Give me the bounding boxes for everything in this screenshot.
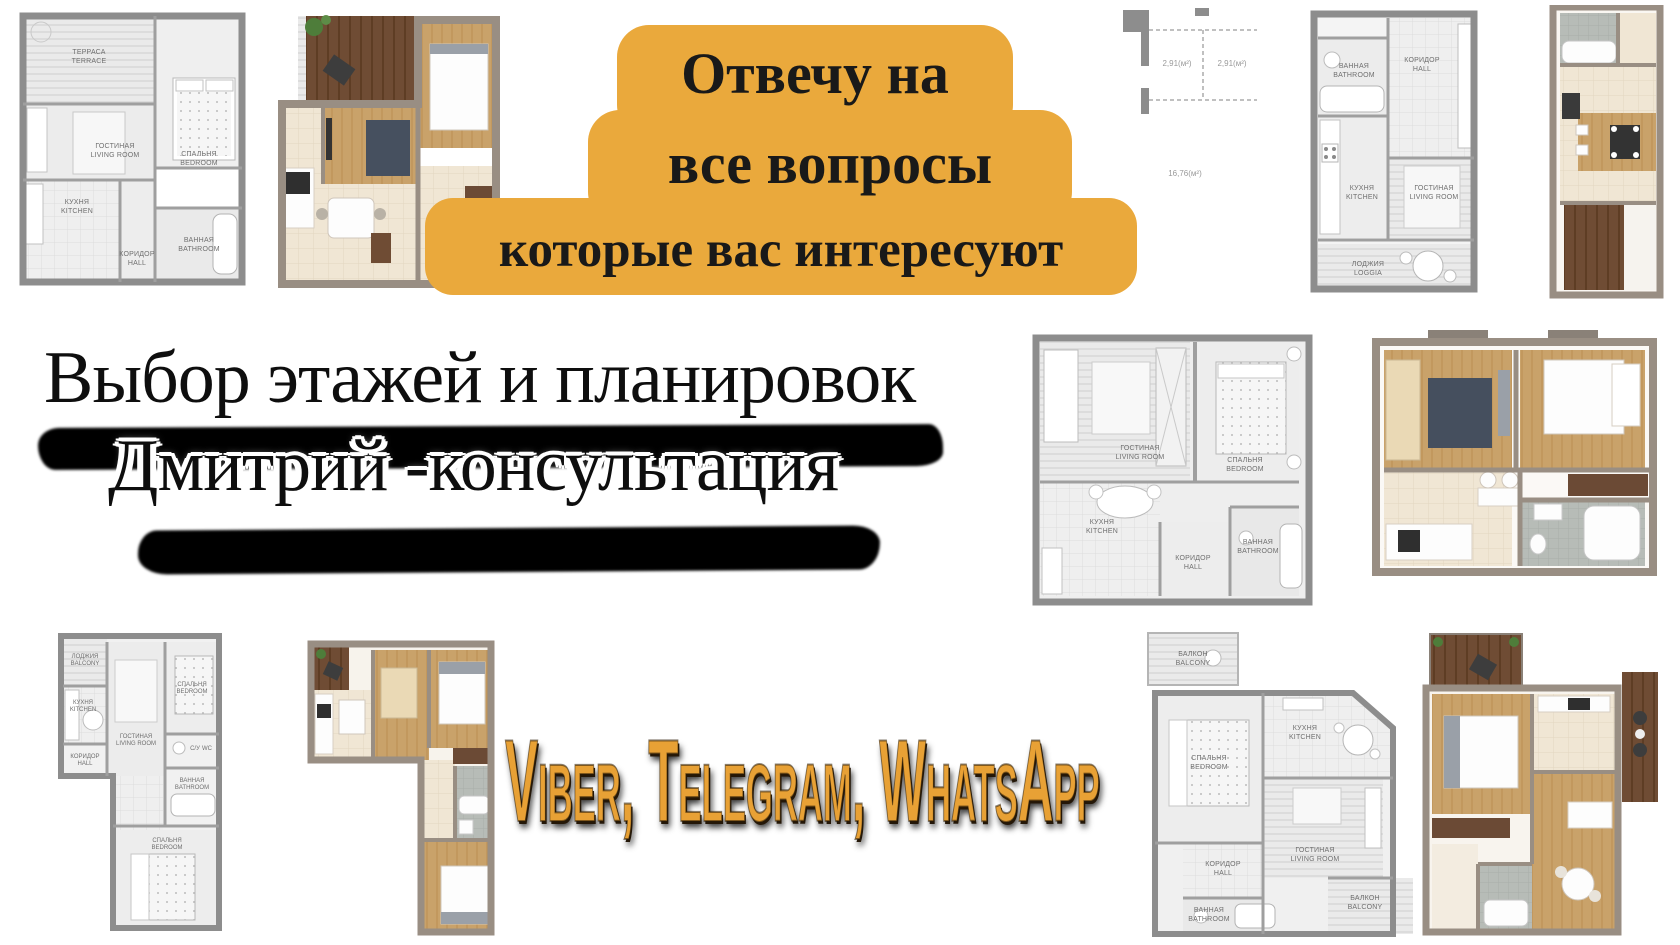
svg-text:BALCONY: BALCONY [1348,904,1383,911]
floor-plan-10-gray-bay: БАЛКОН BALCONY СПАЛЬНЯ BEDROOM КУХНЯ KIT… [1143,628,1418,940]
washer-icon [459,820,473,834]
sofa-icon [1044,350,1078,442]
svg-text:ГОСТИНАЯ: ГОСТИНАЯ [1120,445,1159,452]
svg-text:BATHROOM: BATHROOM [175,785,209,791]
svg-text:HALL: HALL [77,761,93,767]
svg-text:КУХНЯ: КУХНЯ [1293,725,1317,732]
svg-text:LIVING ROOM: LIVING ROOM [116,741,156,747]
sink-icon [1534,504,1562,520]
bathtub-icon [459,796,489,814]
svg-text:LIVING ROOM: LIVING ROOM [1116,454,1165,461]
svg-text:HALL: HALL [1214,870,1232,877]
chair-icon [1633,711,1647,725]
svg-text:WC: WC [202,746,213,752]
svg-text:BATHROOM: BATHROOM [1333,72,1375,79]
svg-text:КОРИДОР: КОРИДОР [1205,861,1241,868]
svg-text:КОРИДОР: КОРИДОР [70,754,99,760]
bed-icon [430,44,488,130]
toilet-icon [1530,534,1546,554]
badge-text-line1: Отвечу на [617,40,1013,107]
svg-text:КОРИДОР: КОРИДОР [119,251,155,258]
svg-text:KITCHEN: KITCHEN [1086,528,1118,535]
bathtub-icon [1562,41,1616,63]
floor-plan-9-color-lshape [303,628,498,940]
svg-text:ВАННАЯ: ВАННАЯ [1194,907,1224,914]
rug-icon [115,660,157,722]
svg-text:LOGGIA: LOGGIA [1354,270,1382,277]
dresser-icon [1432,818,1510,838]
floor-plan-7-color [1368,308,1663,580]
svg-text:BEDROOM: BEDROOM [1190,764,1228,771]
svg-text:BEDROOM: BEDROOM [151,845,182,851]
svg-text:HALL: HALL [128,260,146,267]
sink-icon [1324,52,1340,68]
svg-text:KITCHEN: KITCHEN [1289,734,1321,741]
table-icon [83,710,103,730]
svg-text:КУХНЯ: КУХНЯ [1090,519,1114,526]
svg-text:LIVING ROOM: LIVING ROOM [1410,194,1459,201]
dining-table-icon [328,198,374,238]
svg-text:BATHROOM: BATHROOM [178,246,220,253]
svg-text:HALL: HALL [1184,564,1202,571]
svg-text:BEDROOM: BEDROOM [180,160,218,167]
dining-table-icon [339,700,365,734]
svg-text:ЛОДЖИЯ: ЛОДЖИЯ [72,654,99,660]
svg-text:ЛОДЖИЯ: ЛОДЖИЯ [1352,261,1384,268]
sofa-icon [381,668,417,718]
svg-text:LIVING ROOM: LIVING ROOM [1291,856,1340,863]
badge-text-line2: все вопросы [588,130,1072,197]
rug-icon [1293,788,1341,824]
svg-text:ВАННАЯ: ВАННАЯ [180,778,205,784]
floor-plan-3-schematic: 2,91(м²) 2,91(м²) 16,76(м²) [1085,8,1260,215]
svg-text:BATHROOM: BATHROOM [1188,916,1230,923]
sofa-icon [1365,788,1381,848]
svg-text:КОРИДОР: КОРИДОР [1404,57,1440,64]
sofa-icon [1386,360,1420,460]
svg-text:2,91(м²): 2,91(м²) [1162,59,1191,68]
svg-text:ГОСТИНАЯ: ГОСТИНАЯ [95,143,134,150]
bathtub-icon [1280,524,1302,588]
tv-icon [326,118,332,160]
svg-text:KITCHEN: KITCHEN [1346,194,1378,201]
svg-text:BEDROOM: BEDROOM [1226,466,1264,473]
svg-text:КОРИДОР: КОРИДОР [1175,555,1211,562]
table-icon [1413,251,1443,281]
plan3-areas: 2,91(м²) 2,91(м²) 16,76(м²) [1162,59,1246,178]
promo-collage: ТЕРРАСА TERRACE ГОСТИНАЯ LIVING ROOM СПА… [0,0,1680,945]
stove-icon [1322,144,1338,162]
svg-text:СПАЛЬНЯ: СПАЛЬНЯ [1191,755,1227,762]
headline-shadow-band-2 [138,525,880,574]
svg-text:СПАЛЬНЯ: СПАЛЬНЯ [152,838,181,844]
bathtub-icon [1320,86,1384,112]
svg-text:С/У: С/У [190,746,200,752]
floor-plan-11-color-terrace [1418,632,1663,940]
bathtub-icon [171,794,215,816]
dresser-icon [1568,474,1648,496]
svg-text:ВАННАЯ: ВАННАЯ [1243,539,1273,546]
desk-icon [1568,802,1612,828]
bathtub-icon [1584,506,1640,560]
floor-plan-5-color-studio [1548,5,1665,300]
dining-table-icon [1343,725,1373,755]
stove-icon [317,704,331,718]
bathtub-icon [1484,900,1528,926]
svg-text:BALCONY: BALCONY [1176,660,1211,667]
svg-text:ВАННАЯ: ВАННАЯ [1339,63,1369,70]
bathtub-icon [1235,904,1275,928]
floor-plan-8-gray-lshape: ЛОДЖИЯ BALCONY КУХНЯ KITCHEN КОРИДОР HAL… [55,628,225,935]
svg-text:2,91(м²): 2,91(м²) [1217,59,1246,68]
svg-text:BALCONY: BALCONY [71,661,100,667]
svg-text:КУХНЯ: КУХНЯ [65,199,89,206]
svg-text:BEDROOM: BEDROOM [176,689,207,695]
svg-text:ГОСТИНАЯ: ГОСТИНАЯ [1295,847,1334,854]
dining-table-icon [1097,486,1153,518]
svg-text:КУХНЯ: КУХНЯ [73,700,93,706]
rug-icon [1092,362,1150,434]
headline-floors-layouts: Выбор этажей и планировок [44,336,915,421]
plant-icon [1509,637,1519,647]
svg-text:ГОСТИНАЯ: ГОСТИНАЯ [120,734,152,740]
stove-icon [286,172,310,194]
svg-text:ТЕРРАСА: ТЕРРАСА [72,49,105,56]
chair-icon [1633,743,1647,757]
svg-text:БАЛКОН: БАЛКОН [1178,651,1208,658]
svg-text:KITCHEN: KITCHEN [70,707,96,713]
badge-text-line3: которые вас интересуют [425,221,1137,279]
svg-text:KITCHEN: KITCHEN [61,208,93,215]
svg-text:BATHROOM: BATHROOM [1237,548,1279,555]
toilet-icon [173,742,185,754]
svg-text:КУХНЯ: КУХНЯ [1350,185,1374,192]
floor-plan-4-gray-narrow: ВАННАЯ BATHROOM КОРИДОР HALL КУХНЯ KITCH… [1308,8,1480,295]
svg-text:СПАЛЬНЯ: СПАЛЬНЯ [1227,457,1263,464]
stove-icon [1568,698,1590,710]
svg-text:СПАЛЬНЯ: СПАЛЬНЯ [177,682,206,688]
svg-text:TERRACE: TERRACE [72,58,107,65]
fridge-icon [1562,93,1580,119]
rug-icon [366,120,410,176]
rug-icon [1428,378,1492,448]
svg-text:БАЛКОН: БАЛКОН [1350,895,1380,902]
svg-text:СПАЛЬНЯ: СПАЛЬНЯ [181,151,217,158]
svg-text:ГОСТИНАЯ: ГОСТИНАЯ [1414,185,1453,192]
stove-icon [1398,530,1420,552]
svg-text:16,76(м²): 16,76(м²) [1168,169,1202,178]
plant-icon [1433,637,1443,647]
floor-plan-1-gray-terrace: ТЕРРАСА TERRACE ГОСТИНАЯ LIVING ROOM СПА… [15,8,250,290]
svg-text:HALL: HALL [1413,66,1431,73]
svg-text:ВАННАЯ: ВАННАЯ [184,237,214,244]
plant-icon [316,649,326,659]
plant-icon [305,18,323,36]
headline-consultation: Дмитрий -консультация [108,424,838,509]
tv-icon [1498,370,1510,436]
svg-text:LIVING ROOM: LIVING ROOM [91,152,140,159]
bathtub-icon [213,214,237,274]
floor-plan-6-gray: ГОСТИНАЯ LIVING ROOM СПАЛЬНЯ BEDROOM КУХ… [1030,332,1315,608]
messengers-text: Viber, Telegram, WhatsApp [505,714,1100,849]
